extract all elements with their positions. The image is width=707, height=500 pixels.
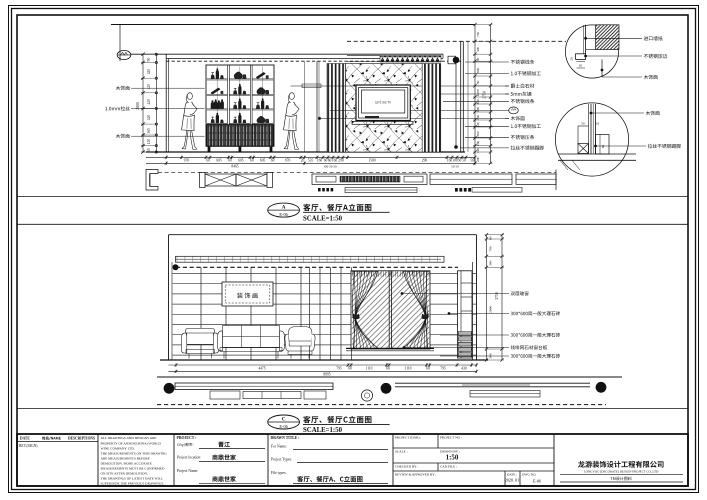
svg-text:420: 420 [147, 69, 151, 75]
svg-text:300: 300 [476, 99, 480, 105]
svg-text:800: 800 [476, 131, 480, 137]
svg-text:2020. 01: 2020. 01 [505, 478, 520, 483]
svg-text:20: 20 [570, 57, 574, 61]
svg-text:E-06: E-06 [279, 212, 288, 217]
svg-text:DEMOLITION. MORE ACCURATE: DEMOLITION. MORE ACCURATE [101, 461, 152, 465]
svg-text:1110: 1110 [405, 366, 412, 370]
svg-text:WINE COMPANY LTD.: WINE COMPANY LTD. [101, 446, 135, 450]
svg-text:100 50 50: 100 50 50 [323, 164, 337, 168]
svg-text:120: 120 [476, 122, 480, 128]
svg-text:1:50: 1:50 [446, 454, 459, 462]
svg-text:430: 430 [461, 366, 467, 370]
svg-text:C: C [282, 417, 286, 423]
svg-text:DWG NO.: DWG NO. [522, 473, 536, 477]
svg-text:E-06: E-06 [279, 424, 288, 429]
svg-text:605: 605 [238, 159, 244, 163]
svg-text:50: 50 [462, 159, 466, 163]
svg-text:300: 300 [476, 47, 480, 53]
svg-text:50: 50 [581, 122, 585, 126]
svg-text:60: 60 [386, 366, 390, 370]
svg-text:60: 60 [426, 366, 430, 370]
svg-text:60: 60 [348, 366, 352, 370]
svg-text:A: A [282, 205, 286, 211]
svg-text:SCALE=1:50: SCALE=1:50 [303, 216, 343, 223]
svg-text:290: 290 [422, 159, 428, 163]
svg-text:20: 20 [579, 64, 583, 68]
svg-text:35: 35 [147, 148, 151, 152]
svg-text:E-06: E-06 [533, 479, 541, 484]
svg-text:Project location:: Project location: [177, 456, 201, 460]
svg-text:10: 10 [596, 122, 600, 126]
svg-text:PROPERTY OF AJISEN(CHINA) WORL: PROPERTY OF AJISEN(CHINA) WORLD [101, 441, 162, 445]
svg-text:1500: 1500 [368, 159, 375, 163]
svg-text:1000: 1000 [476, 89, 480, 96]
svg-text:60: 60 [250, 159, 254, 163]
svg-text:THE MEASUREMENTS ON THIS DRAWI: THE MEASUREMENTS ON THIS DRAWING [101, 451, 168, 455]
svg-text:REV.(SIGN): REV.(SIGN) [19, 444, 38, 448]
svg-text:605: 605 [260, 159, 266, 163]
svg-text:420: 420 [147, 99, 151, 105]
svg-text:535: 535 [308, 159, 314, 163]
svg-text:SCALE :: SCALE : [395, 450, 408, 454]
svg-text:160: 160 [332, 159, 338, 163]
svg-text:365: 365 [147, 128, 151, 134]
svg-text:SUPERSEDE THE PREVIOUS DRAWING: SUPERSEDE THE PREVIOUS DRAWINGS. [101, 482, 165, 486]
svg-text:50 50: 50 50 [451, 164, 459, 168]
svg-text:80: 80 [601, 145, 605, 149]
svg-text:100: 100 [476, 107, 480, 113]
svg-text:90: 90 [147, 58, 151, 62]
svg-text:DATE :: DATE : [507, 473, 517, 477]
svg-text:DESCRIPTIONS: DESCRIPTIONS [68, 437, 95, 441]
svg-text:CHECKED BY :: CHECKED BY : [395, 465, 418, 469]
svg-text:80: 80 [476, 57, 480, 61]
svg-text:4475: 4475 [258, 366, 265, 370]
svg-text:300: 300 [489, 260, 493, 266]
svg-text:ALL DRAWINGS AND DESIGNS ARE: ALL DRAWINGS AND DESIGNS ARE [101, 436, 157, 440]
svg-text:8465: 8465 [231, 164, 238, 168]
svg-text:8895: 8895 [323, 372, 330, 376]
svg-text:PROJECT (DAR) :: PROJECT (DAR) : [395, 436, 421, 440]
svg-text:60: 60 [271, 159, 275, 163]
svg-text:REVIEW & APPROVED BY :: REVIEW & APPROVED BY : [395, 473, 436, 477]
svg-text:80: 80 [476, 80, 480, 84]
svg-text:600: 600 [476, 68, 480, 74]
svg-text:DATE: DATE [20, 437, 30, 441]
svg-text:PROJECT :: PROJECT : [177, 436, 197, 440]
svg-text:795: 795 [440, 366, 446, 370]
svg-text:For Name:: For Name: [271, 445, 287, 449]
svg-text:740: 740 [476, 115, 480, 121]
svg-text:PROJECT NO :: PROJECT NO : [440, 436, 462, 440]
svg-text:780: 780 [489, 246, 493, 252]
svg-text:420: 420 [147, 84, 151, 90]
svg-text:970: 970 [285, 159, 291, 163]
svg-text:Project Name:: Project Name: [177, 469, 198, 473]
svg-text:ARE MEASUREMENTS BEFORE: ARE MEASUREMENTS BEFORE [101, 456, 150, 460]
svg-text:60: 60 [489, 236, 493, 240]
svg-text:605: 605 [216, 159, 222, 163]
svg-text:120: 120 [147, 139, 151, 145]
svg-text:SCALE=1:50: SCALE=1:50 [303, 427, 343, 434]
svg-text:2000: 2000 [489, 306, 493, 313]
svg-text:File types:: File types: [271, 471, 286, 475]
svg-text:Project Types:: Project Types: [271, 458, 292, 462]
svg-text:1110: 1110 [366, 366, 373, 370]
svg-text:60: 60 [206, 159, 210, 163]
svg-text:420: 420 [147, 115, 151, 121]
svg-text:2750: 2750 [483, 91, 487, 99]
svg-text:MEASUREMENTS MUST BE CONFIRMED: MEASUREMENTS MUST BE CONFIRMED [101, 467, 165, 471]
svg-text:160: 160 [317, 159, 323, 163]
svg-text:60: 60 [228, 159, 232, 163]
svg-text:20: 20 [301, 159, 305, 163]
svg-text:160: 160 [476, 141, 480, 147]
svg-text:CAD FILE :: CAD FILE : [440, 465, 457, 469]
svg-text:200: 200 [476, 157, 480, 163]
svg-text:970: 970 [184, 159, 190, 163]
svg-text:750: 750 [476, 32, 480, 38]
svg-text:120: 120 [476, 148, 480, 154]
svg-text:DRAWN BY :: DRAWN BY : [440, 450, 460, 454]
svg-text:THE DRAWINGS OF LATEST DATE WI: THE DRAWINGS OF LATEST DATE WILL [101, 477, 163, 481]
svg-text:290: 290 [338, 159, 344, 163]
svg-text:50: 50 [458, 159, 462, 163]
svg-text:ON SITE AFTER DEMOLITION.: ON SITE AFTER DEMOLITION. [101, 472, 148, 476]
svg-text:DRAWN TITLE :: DRAWN TITLE : [271, 436, 300, 440]
svg-text:795: 795 [336, 366, 342, 370]
